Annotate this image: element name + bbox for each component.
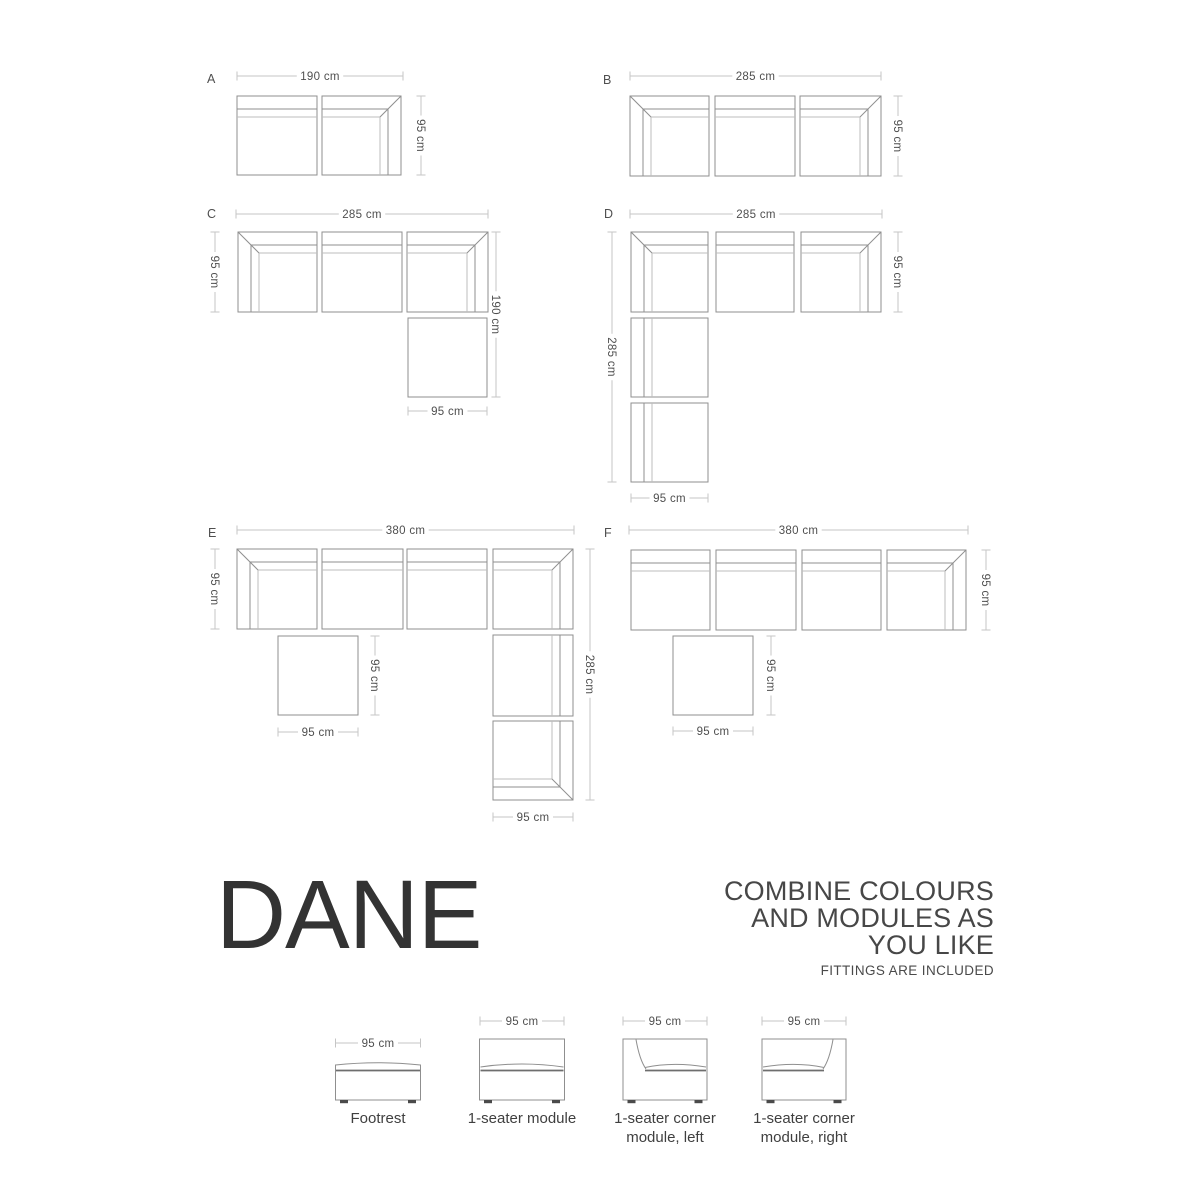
dimension-label: 95 cm (891, 256, 903, 289)
layout-letter-E: E (208, 526, 216, 540)
module-plan-plain-top (716, 550, 796, 630)
icon-foot (767, 1100, 775, 1103)
dimension-label: 285 cm (342, 209, 382, 221)
icon-foot (340, 1100, 348, 1103)
legend-label-1-seater: 1-seater module (468, 1109, 576, 1128)
dimension-label: 190 cm (489, 295, 501, 335)
dimension-label: 285 cm (736, 71, 776, 83)
dimension-label: 95 cm (302, 727, 335, 739)
legend-label-line: 1-seater corner (614, 1109, 716, 1128)
corner-left-icon (623, 1039, 707, 1100)
legend-label-line: module, right (753, 1128, 855, 1147)
tagline-line-1: COMBINE COLOURS (724, 878, 994, 905)
module-plan-plain-left (631, 318, 708, 397)
layout-letter-B: B (603, 73, 611, 87)
dimension-label: 95 cm (414, 119, 426, 152)
footrest-plan (673, 636, 753, 715)
dimension-label: 95 cm (764, 659, 776, 692)
icon-foot (834, 1100, 842, 1103)
layout-letter-F: F (604, 526, 612, 540)
seater-icon (480, 1039, 565, 1100)
dimension-label: 380 cm (386, 525, 426, 537)
icon-foot (552, 1100, 560, 1103)
dimension-label: 95 cm (649, 1016, 682, 1028)
dimension-label: 95 cm (697, 726, 730, 738)
tagline-note: FITTINGS ARE INCLUDED (724, 963, 994, 978)
tagline: COMBINE COLOURS AND MODULES AS YOU LIKE … (724, 878, 994, 978)
dimension-label: 95 cm (362, 1038, 395, 1050)
legend-label-footrest: Footrest (350, 1109, 405, 1128)
footrest-icon (336, 1063, 421, 1100)
dimension-label: 95 cm (517, 812, 550, 824)
dimension-label: 95 cm (208, 573, 220, 606)
layout-letter-D: D (604, 207, 613, 221)
module-plan-plain-top (407, 549, 487, 629)
product-name: DANE (216, 866, 482, 963)
dimension-label: 285 cm (583, 655, 595, 695)
dimension-label: 95 cm (653, 493, 686, 505)
corner-right-icon (762, 1039, 846, 1100)
dimension-label: 95 cm (368, 659, 380, 692)
module-plan-plain-top (802, 550, 881, 630)
sofa-module-layout-diagram: A190 cm95 cmB285 cm95 cmC285 cm95 cm190 … (0, 0, 1200, 1200)
tagline-line-3: YOU LIKE (724, 932, 994, 959)
footrest-plan (408, 318, 487, 397)
layout-letter-A: A (207, 72, 216, 86)
dimension-label: 380 cm (779, 525, 819, 537)
module-plan-plain-top (716, 232, 794, 312)
dimension-label: 95 cm (788, 1016, 821, 1028)
legend-label-line: Footrest (350, 1109, 405, 1128)
layout-letter-C: C (207, 207, 216, 221)
tagline-line-2: AND MODULES AS (724, 905, 994, 932)
dimension-label: 285 cm (605, 337, 617, 377)
dimension-label: 95 cm (979, 574, 991, 607)
dimension-label: 95 cm (208, 256, 220, 289)
module-plan-plain-top (322, 232, 402, 312)
legend-label-corner-right: 1-seater corner module, right (753, 1109, 855, 1147)
dimension-label: 95 cm (431, 406, 464, 418)
icon-foot (695, 1100, 703, 1103)
module-plan-plain-top (237, 96, 317, 175)
module-plan-plain-top (322, 549, 403, 629)
icon-foot (408, 1100, 416, 1103)
footrest-plan (278, 636, 358, 715)
legend-label-line: module, left (614, 1128, 716, 1147)
module-plan-plain-top (715, 96, 795, 176)
dimension-label: 190 cm (300, 71, 340, 83)
legend-label-line: 1-seater module (468, 1109, 576, 1128)
module-plan-plain-left (631, 403, 708, 482)
legend-label-line: 1-seater corner (753, 1109, 855, 1128)
module-plan-plain-right (493, 635, 573, 716)
icon-foot (628, 1100, 636, 1103)
icon-foot (484, 1100, 492, 1103)
dimension-label: 95 cm (891, 120, 903, 153)
module-catalog-page: A190 cm95 cmB285 cm95 cmC285 cm95 cm190 … (0, 0, 1200, 1200)
module-plan-plain-top (631, 550, 710, 630)
dimension-label: 285 cm (736, 209, 776, 221)
legend-label-corner-left: 1-seater corner module, left (614, 1109, 716, 1147)
dimension-label: 95 cm (506, 1016, 539, 1028)
